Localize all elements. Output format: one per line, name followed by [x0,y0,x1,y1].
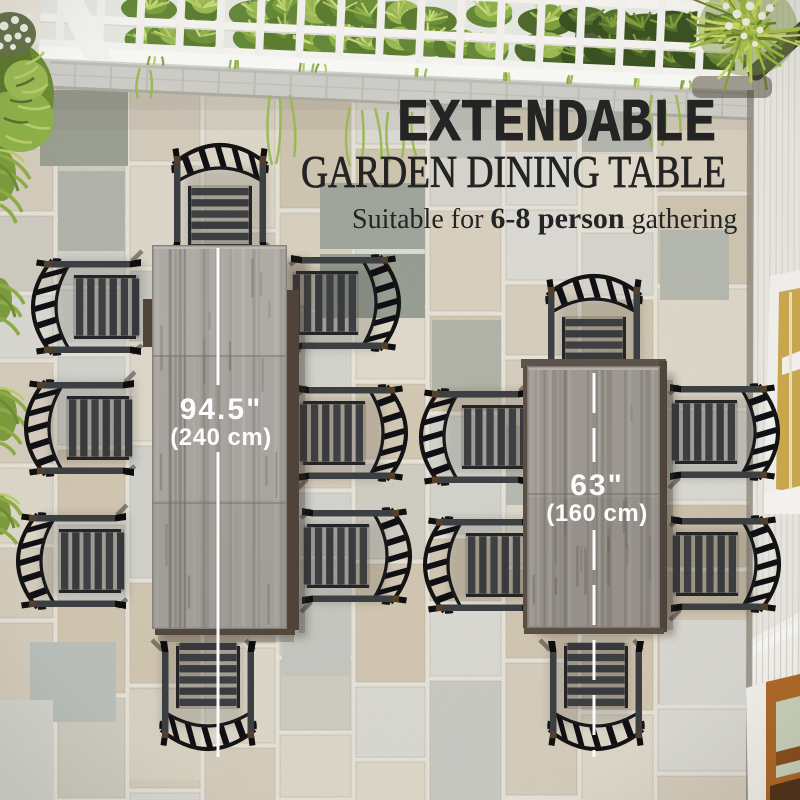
svg-text:GARDEN DINING TABLE: GARDEN DINING TABLE [301,147,726,197]
svg-text:Suitable for 6-8 person gather: Suitable for 6-8 person gathering [352,202,737,235]
